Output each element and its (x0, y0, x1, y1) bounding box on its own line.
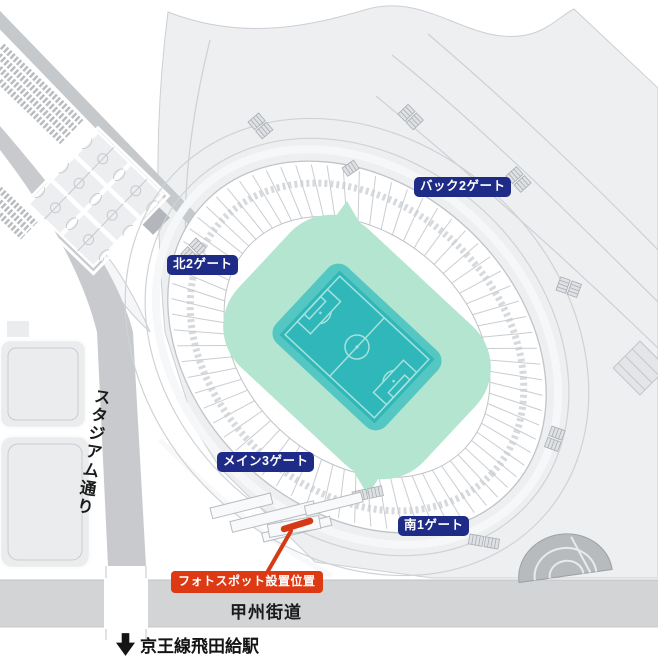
gate-badge-main: メイン3ゲート (217, 452, 314, 472)
west-field-blocks (0, 320, 90, 568)
gate-badge-north: 北2ゲート (167, 255, 238, 275)
gate-badge-south: 南1ゲート (398, 516, 469, 536)
gate-badge-back: バック2ゲート (414, 177, 511, 197)
photo-spot-badge: フォトスポット設置位置 (171, 571, 323, 593)
road-label-koshu-kaido: 甲州街道 (230, 598, 302, 623)
sports-courts (23, 128, 169, 274)
stadium-area-map: 北2ゲート バック2ゲート メイン3ゲート 南1ゲート フォトスポット設置位置 … (0, 0, 658, 663)
station-name: 京王線飛田給駅 (140, 632, 259, 657)
road-koshu-kaido (0, 578, 658, 629)
down-arrow-icon (116, 633, 135, 656)
station-label: 京王線飛田給駅 (116, 632, 259, 657)
stadium-map-svg (0, 0, 658, 663)
